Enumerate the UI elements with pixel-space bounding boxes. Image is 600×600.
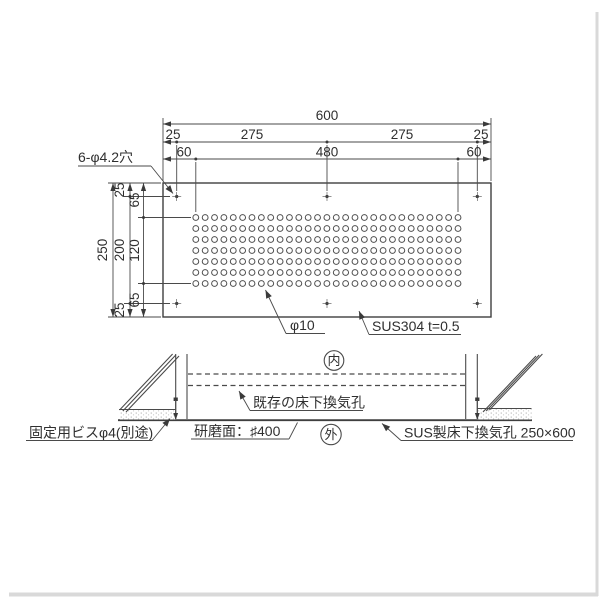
- dim-250: 250: [95, 239, 110, 262]
- callout-product: SUS製床下換気孔 250×600: [382, 424, 576, 441]
- dim-200: 200: [112, 239, 127, 262]
- dim-65-bottom: 65: [127, 292, 142, 307]
- callout-existing-vent: 既存の床下換気孔: [239, 391, 365, 411]
- dim-60-right: 60: [466, 145, 481, 160]
- dim-25-top: 25: [112, 182, 127, 197]
- right-joist: [483, 354, 542, 412]
- dim-275-left: 275: [241, 127, 264, 142]
- dim-25-right: 25: [473, 127, 488, 142]
- dim-overall-width: 600: [316, 108, 339, 123]
- existing-vent-hidden-lines: [188, 374, 465, 386]
- right-sill: [478, 409, 532, 420]
- dim-480: 480: [316, 145, 339, 160]
- bottom-edge-shadow: [9, 593, 598, 597]
- product-label: SUS製床下換気孔 250×600: [404, 425, 576, 441]
- technical-drawing: 600 25 275 275 25 60 480 60 250 25 200 2…: [0, 0, 600, 600]
- outside-mark-text: 外: [324, 427, 337, 442]
- left-joist: [120, 354, 179, 412]
- callout-screw: 固定用ビスφ4(別途): [26, 419, 170, 441]
- callout-polish: 研磨面：♯400: [191, 423, 298, 440]
- hole-dia-label: φ10: [290, 317, 315, 333]
- drawing-canvas: 600 25 275 275 25 60 480 60 250 25 200 2…: [0, 0, 600, 600]
- right-edge-shadow: [596, 12, 599, 596]
- mount-holes-label: 6-φ4.2穴: [78, 149, 133, 165]
- inside-mark: 内: [324, 351, 344, 371]
- top-view: 600 25 275 275 25 60 480 60 250 25 200 2…: [78, 108, 491, 335]
- screw-label: 固定用ビスφ4(別途): [29, 425, 153, 441]
- left-sill: [120, 410, 176, 420]
- dim-25-bottom: 25: [112, 302, 127, 317]
- polish-label: 研磨面：♯400: [194, 423, 281, 439]
- section-view: 内 外 既存の床下換気孔 研磨面：♯400 SUS製床下換気孔 250×600 …: [26, 351, 576, 445]
- left-post: [176, 354, 187, 419]
- material-label: SUS304 t=0.5: [372, 318, 460, 334]
- dim-25-left: 25: [165, 127, 180, 142]
- dim-120: 120: [127, 239, 142, 262]
- dim-65-top: 65: [127, 192, 142, 207]
- existing-vent-label: 既存の床下換気孔: [253, 395, 365, 411]
- right-post: [466, 354, 478, 419]
- outside-mark: 外: [321, 424, 341, 444]
- inside-mark-text: 内: [327, 353, 340, 368]
- perforation-holes: [193, 215, 461, 287]
- dim-60-left: 60: [176, 145, 191, 160]
- dim-275-right: 275: [391, 127, 414, 142]
